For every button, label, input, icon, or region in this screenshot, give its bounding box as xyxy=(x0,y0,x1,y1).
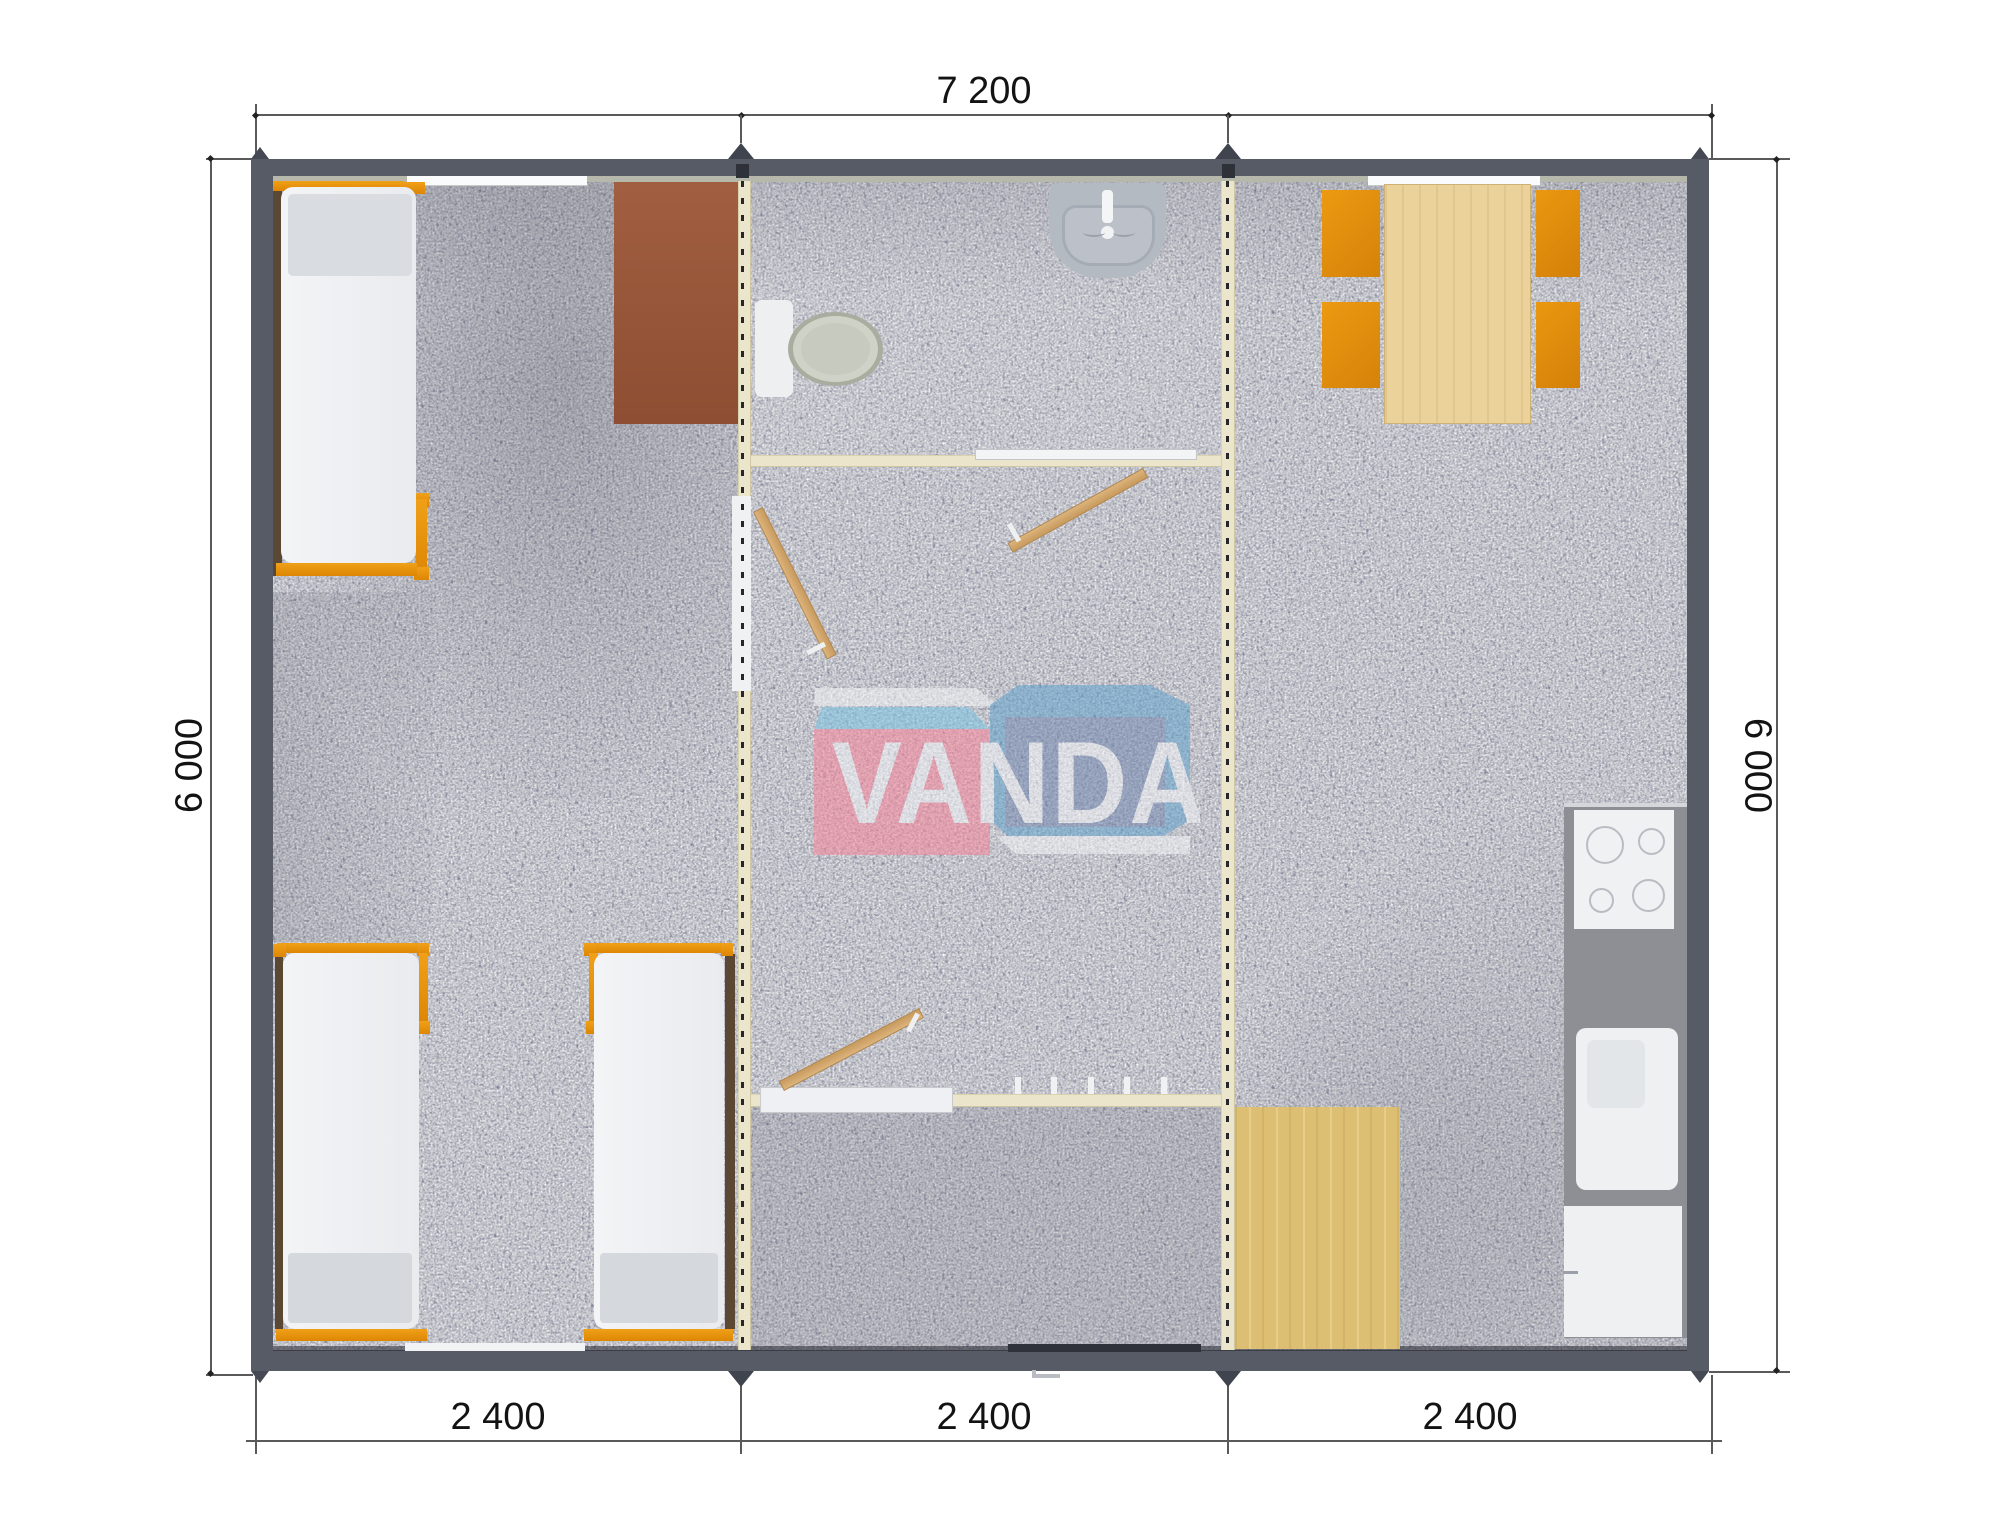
svg-text:VANDA: VANDA xyxy=(832,717,1201,848)
